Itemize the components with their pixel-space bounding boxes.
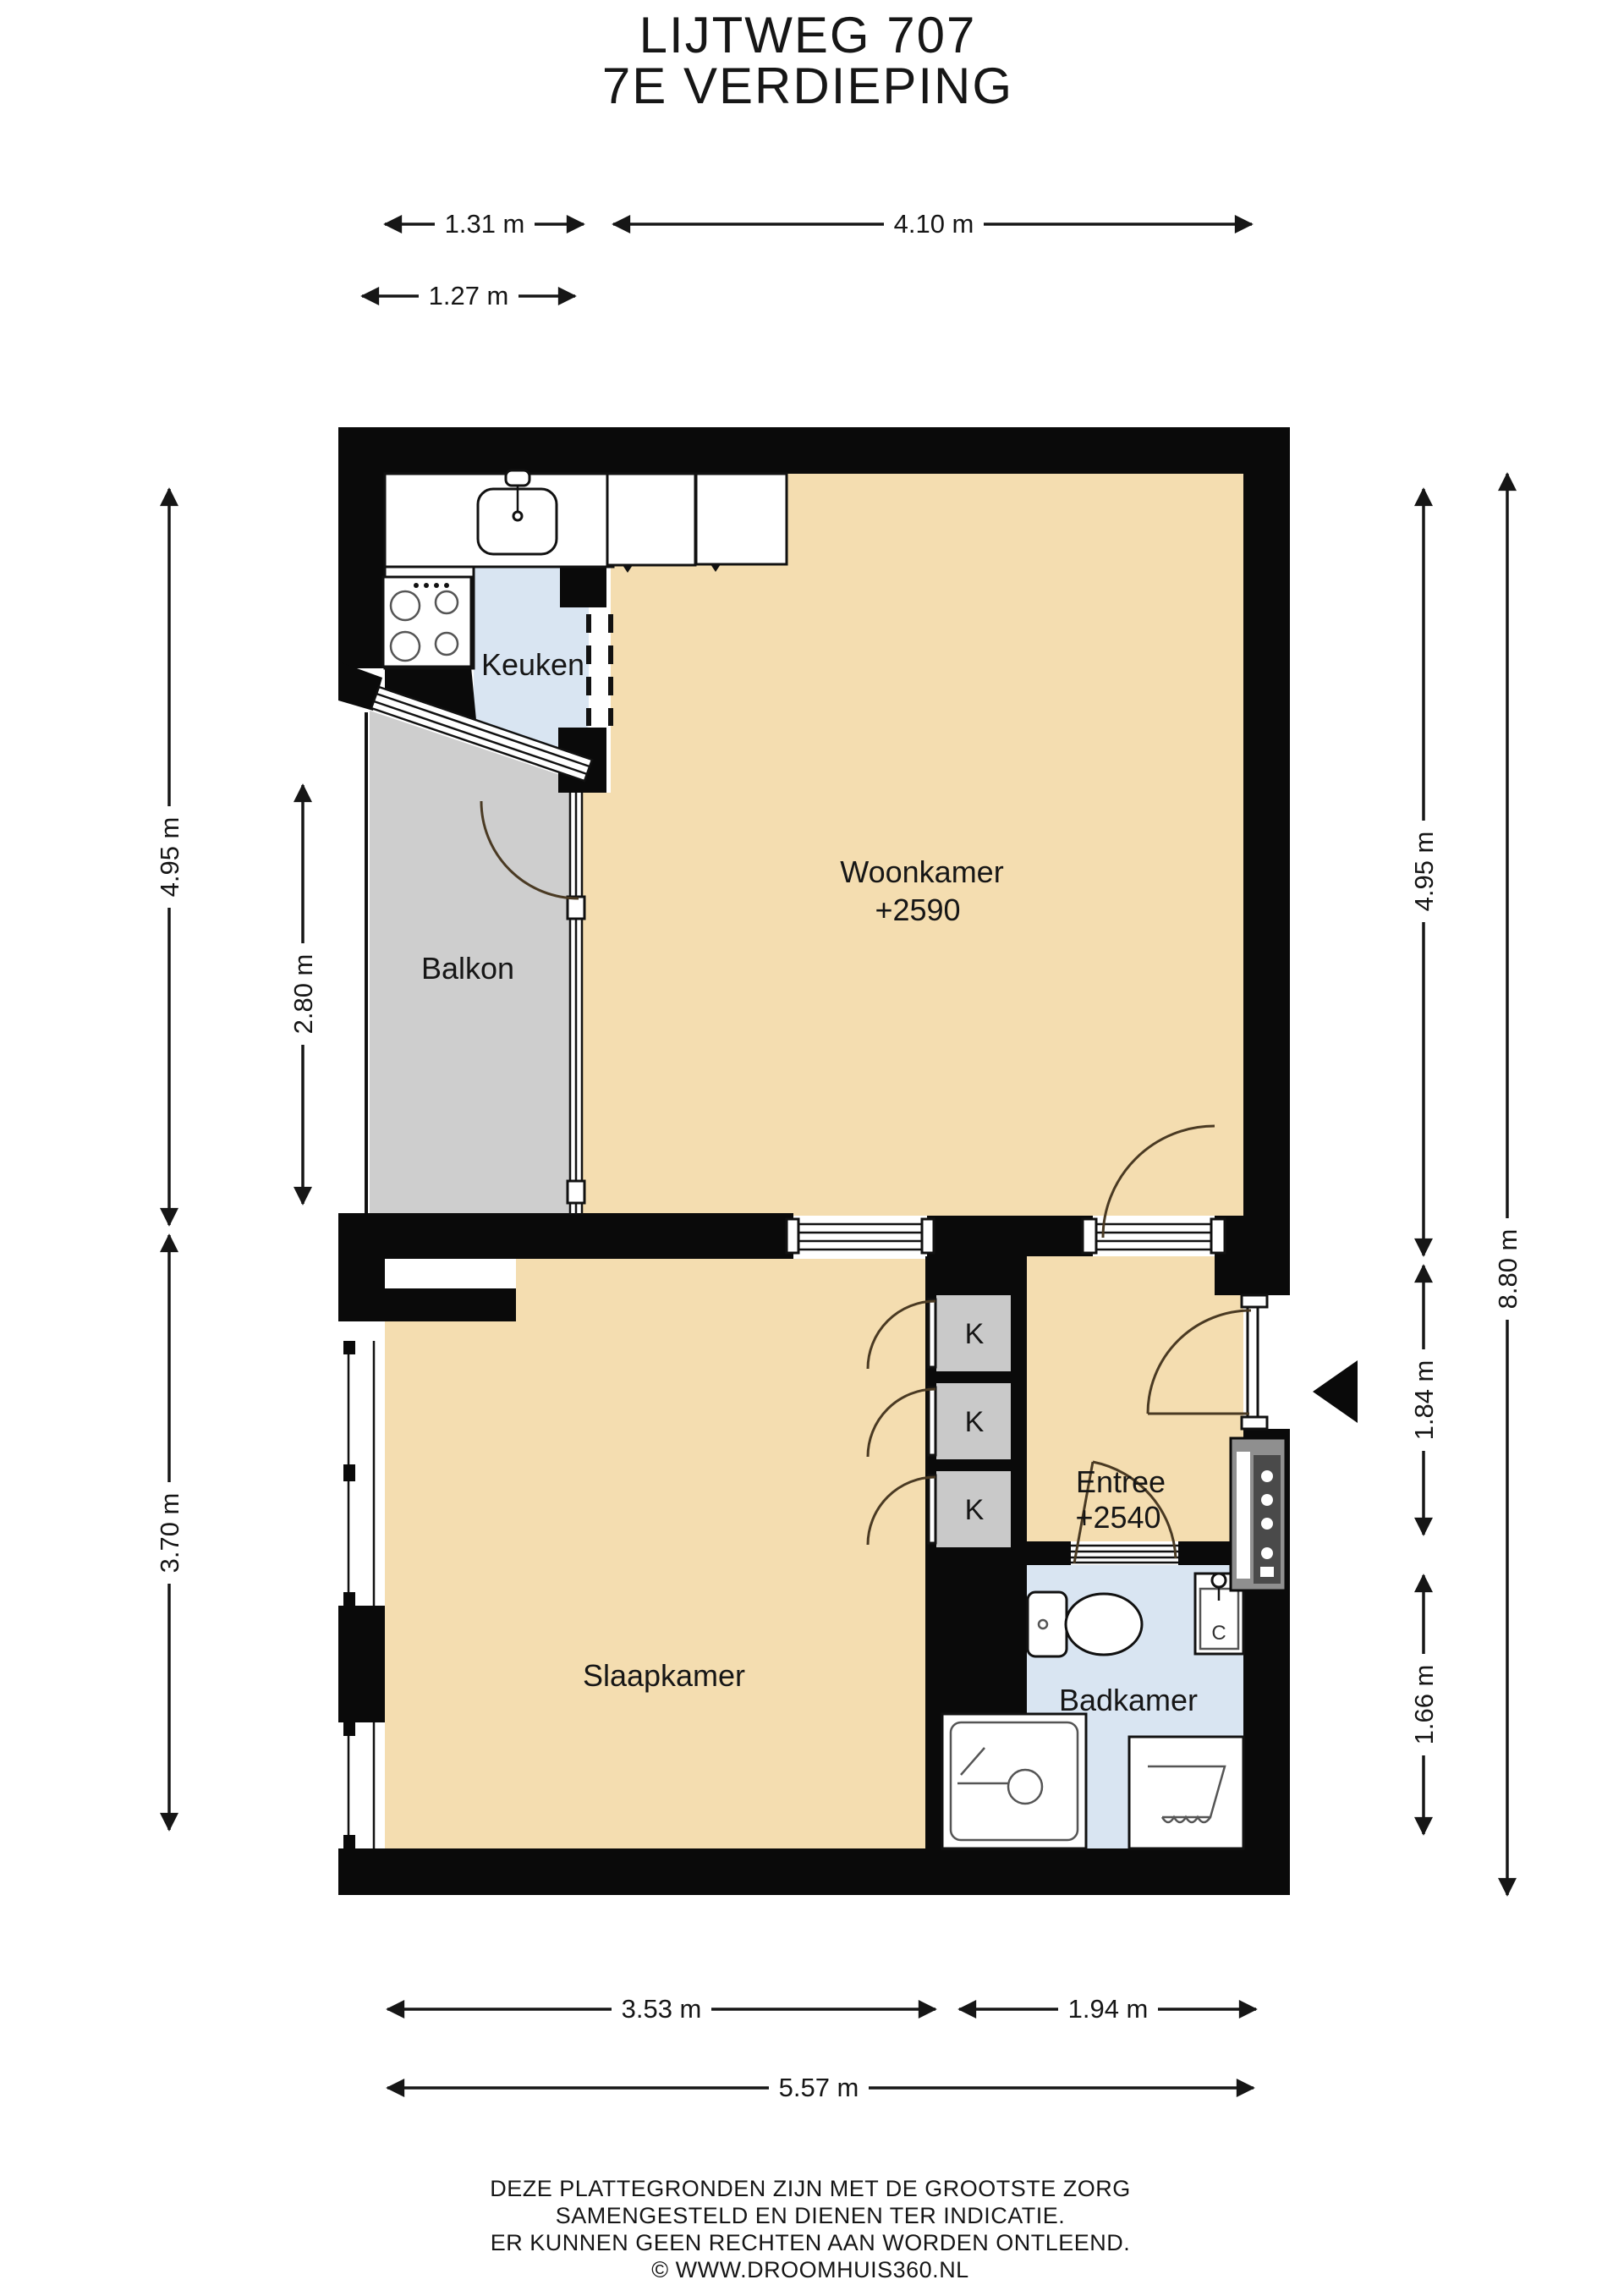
label-badkamer: Badkamer [1059,1683,1198,1717]
wall-shower-left [925,1714,942,1848]
dim-top-131-label: 1.31 m [445,209,525,239]
dim-right-184-label: 1.84 m [1409,1360,1439,1441]
footer-disclaimer: DEZE PLATTEGRONDEN ZIJN MET DE GROOTSTE … [490,2176,1131,2282]
closet-k3-label: K [965,1494,985,1526]
dim-bottom-194-label: 1.94 m [1068,1994,1149,2024]
divider-glazing [787,1216,934,1256]
kitchen-open-boundary [589,614,611,726]
wall-right-corner-block [1215,1256,1290,1295]
label-slaapkamer: Slaapkamer [583,1658,745,1693]
closet-k1-label: K [965,1318,985,1350]
room-slaapkamer-floor [385,1259,925,1848]
floorplan-page: LIJTWEG 707 7E VERDIEPING [0,0,1624,2296]
wall-divider-left [650,1213,793,1259]
shower-icon [942,1714,1086,1848]
closet-k2-label: K [965,1406,985,1438]
footer-line-4: © WWW.DROOMHUIS360.NL [651,2257,968,2282]
wall-bedroom-top [338,1288,516,1321]
dim-top-410-label: 4.10 m [894,209,974,239]
wall-divider-mid [927,1216,1093,1256]
window-1 [338,1341,385,1606]
label-woonkamer: Woonkamer [840,854,1003,889]
title-line-1: LIJTWEG 707 [639,7,977,63]
label-entree-level: +2540 [1075,1500,1160,1535]
dim-right-166-label: 1.66 m [1409,1665,1439,1745]
dim-top-127-label: 1.27 m [429,281,509,310]
label-keuken: Keuken [481,647,584,682]
dim-right-495-label: 4.95 m [1409,832,1439,912]
room-woonkamer-floor [582,474,1243,1216]
wall-entree-badkamer-left [1027,1541,1071,1565]
floorplan-drawing: LIJTWEG 707 7E VERDIEPING [0,0,1624,2296]
footer-line-2: SAMENGESTELD EN DIENEN TER INDICATIE. [556,2203,1066,2228]
wall-left-between-windows [338,1606,385,1722]
outside-pocket [385,1259,516,1288]
dim-bottom-557-label: 5.57 m [779,2073,859,2102]
dim-left-495-label: 4.95 m [155,817,184,898]
wall-left-upper [338,427,385,668]
wall-balcony-bottom [338,1213,650,1259]
footer-line-1: DEZE PLATTEGRONDEN ZIJN MET DE GROOTSTE … [490,2176,1131,2201]
kitchen-faucet-icon [506,470,529,486]
dim-left-370-label: 3.70 m [155,1493,184,1574]
dim-right-880-label: 8.80 m [1493,1229,1522,1310]
washing-machine-icon [1129,1737,1243,1848]
label-woonkamer-level: +2590 [875,893,960,927]
balcony-glass-wall [568,793,584,1215]
toilet-icon [1028,1592,1142,1656]
wall-bottom [338,1848,1290,1895]
washbasin-label: C [1211,1622,1226,1645]
cabinet-1 [607,474,695,565]
kitchen-faucet-head [513,512,522,520]
cabinet-2 [696,474,787,564]
dim-bottom-353-label: 3.53 m [622,1994,702,2024]
window-2 [338,1722,385,1848]
label-entree: Entree [1076,1464,1166,1499]
dim-left-280-label: 2.80 m [288,954,318,1035]
label-balkon: Balkon [421,951,514,986]
meter-cabinet-icon [1231,1438,1286,1590]
entrance-arrow-icon [1313,1360,1358,1423]
title-line-2: 7E VERDIEPING [602,58,1013,114]
stove-icon [383,577,471,667]
entrance-door-leaf [1248,1307,1258,1417]
footer-line-3: ER KUNNEN GEEN RECHTEN AAN WORDEN ONTLEE… [491,2230,1131,2255]
wall-top [338,427,1243,474]
wall-right-upper [1243,427,1290,1295]
page-title: LIJTWEG 707 7E VERDIEPING [602,7,1013,114]
